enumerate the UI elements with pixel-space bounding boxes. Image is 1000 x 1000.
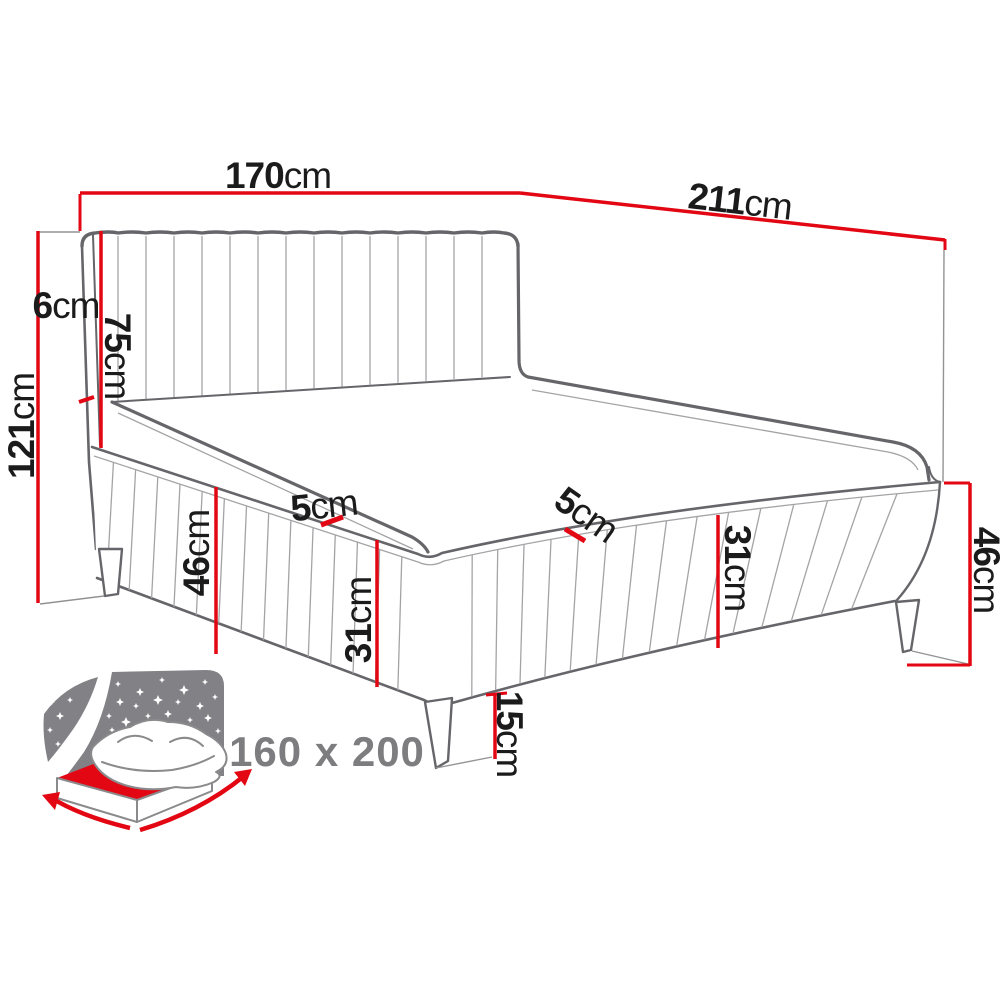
front-leg: [425, 698, 452, 768]
dim-headboard-depth-label: 6cm: [33, 285, 100, 327]
dim-value: 6: [33, 285, 53, 326]
mattress-rail-corner: [929, 467, 940, 482]
icon-arrow-width-head: [42, 792, 60, 810]
dim-value: 46: [176, 557, 217, 596]
dim-rail-height-left-label: 31cm: [338, 577, 380, 663]
dim-value: 170: [225, 155, 284, 196]
dim-unit: cm: [489, 730, 530, 777]
extension-line-right: [943, 250, 944, 482]
dim-value: 46: [966, 527, 1000, 566]
mattress-size-label: 160 x 200: [229, 728, 425, 776]
diagram-linework: [0, 0, 1000, 1000]
dim-unit: cm: [308, 482, 359, 528]
dim-base-height-left-label: 46cm: [176, 510, 218, 596]
back-left-leg: [99, 549, 122, 596]
dim-unit: cm: [742, 182, 794, 228]
dim-value: 121: [1, 420, 42, 479]
dim-piping-left-label: 5cm: [289, 482, 360, 531]
dim-headboard-height-label: 75cm: [96, 313, 138, 399]
dim-unit: cm: [1, 373, 42, 420]
dim-rail-height-right-label: 31cm: [716, 525, 758, 611]
dim-unit: cm: [284, 155, 331, 196]
dim-unit: cm: [52, 285, 99, 326]
headboard-right-edge: [518, 244, 528, 377]
dim-value: 211: [686, 175, 747, 222]
dim-width-label: 170cm: [225, 155, 331, 197]
dim-value: 31: [338, 624, 379, 663]
right-leg: [896, 600, 919, 652]
bed-dimension-diagram: 170cm 211cm 6cm 75cm 121cm 46cm 5cm 31cm…: [0, 0, 1000, 1000]
floor-line-left: [40, 596, 104, 604]
dim-leg-height-label: 15cm: [488, 691, 530, 777]
dim-unit: cm: [176, 510, 217, 557]
dim-value: 31: [717, 525, 758, 564]
dim-total-height-label: 121cm: [1, 373, 43, 479]
star-icon: [101, 691, 107, 697]
dim-value: 75: [97, 313, 138, 352]
dim-unit: cm: [717, 564, 758, 611]
dim-unit: cm: [966, 566, 1000, 613]
dim-base-height-right-label: 46cm: [965, 527, 1000, 613]
bed-starry-night-icon: [42, 670, 252, 830]
floor-line-right: [912, 651, 968, 664]
dim-unit: cm: [97, 352, 138, 399]
dim-value: 15: [489, 691, 530, 730]
dim-unit: cm: [338, 577, 379, 624]
